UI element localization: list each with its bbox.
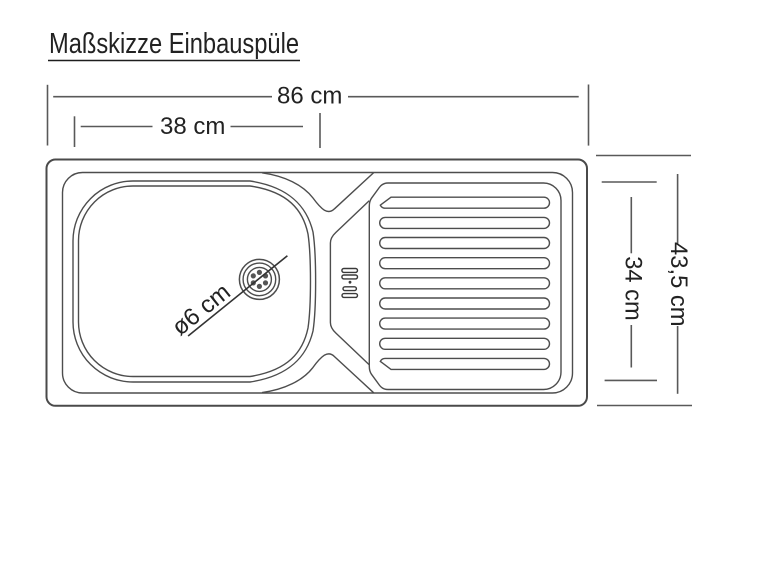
svg-text:43,5 cm: 43,5 cm: [665, 242, 692, 327]
svg-text:34 cm: 34 cm: [619, 256, 646, 321]
svg-text:38 cm: 38 cm: [160, 113, 225, 140]
svg-text:86 cm: 86 cm: [277, 82, 342, 109]
svg-text:ø6 cm: ø6 cm: [167, 278, 236, 341]
svg-text:Maßskizze Einbauspüle: Maßskizze Einbauspüle: [49, 28, 299, 60]
